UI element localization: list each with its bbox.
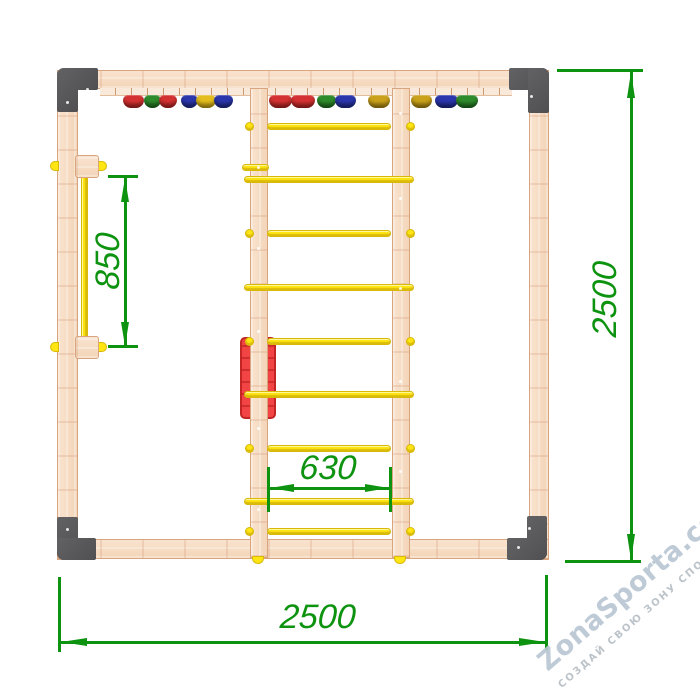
dimension-line bbox=[60, 641, 547, 644]
climbing-hold-blue bbox=[435, 95, 458, 108]
climbing-hold-red bbox=[291, 95, 315, 108]
frame-left-post bbox=[57, 70, 78, 560]
rung-end-cap bbox=[245, 229, 254, 238]
screw-dot bbox=[528, 527, 531, 530]
climbing-hold-yellow bbox=[196, 95, 216, 108]
screw-dot bbox=[86, 88, 89, 91]
ladder-rung bbox=[267, 528, 391, 535]
corner-bracket-bottom-right bbox=[507, 538, 547, 560]
ladder-rung bbox=[244, 284, 414, 291]
screw-dot bbox=[66, 528, 69, 531]
rail-bottom-cap bbox=[394, 556, 406, 564]
dimension-line bbox=[630, 71, 633, 561]
corner-bracket-bottom-left bbox=[57, 538, 96, 560]
screw-dot bbox=[257, 247, 260, 250]
bar-clamp-top bbox=[75, 155, 99, 178]
arrowhead-left bbox=[270, 484, 294, 492]
rung-end-cap bbox=[406, 122, 415, 131]
arrowhead-down bbox=[121, 322, 129, 346]
climbing-hold-blue bbox=[214, 95, 233, 108]
climbing-hold-green bbox=[456, 95, 478, 108]
corner-bracket-top-left bbox=[57, 68, 78, 112]
pullup-bar bbox=[81, 170, 88, 349]
screw-dot bbox=[257, 330, 260, 333]
climbing-hold-red bbox=[159, 95, 177, 108]
dimension-label-2500-bottom: 2500 bbox=[263, 599, 373, 633]
ladder-rung bbox=[244, 176, 414, 183]
screw-dot bbox=[517, 546, 520, 549]
climbing-hold-gold bbox=[368, 95, 390, 108]
arrowhead-up bbox=[627, 72, 635, 98]
ladder-rung bbox=[267, 230, 391, 237]
rail-bottom-cap bbox=[252, 556, 264, 564]
ladder-rung bbox=[244, 391, 414, 398]
rung-end-cap bbox=[245, 337, 254, 346]
arrowhead-up bbox=[121, 178, 129, 202]
screw-dot bbox=[257, 508, 260, 511]
screw-dot bbox=[399, 197, 402, 200]
screw-dot bbox=[530, 95, 533, 98]
rung-end-cap bbox=[406, 444, 415, 453]
rung-end-cap bbox=[245, 527, 254, 536]
bar-peg bbox=[50, 161, 59, 171]
frame-top-beam bbox=[57, 70, 549, 89]
arrowhead-left bbox=[61, 638, 87, 646]
arrowhead-down bbox=[627, 534, 635, 560]
screw-dot bbox=[66, 101, 69, 104]
screw-dot bbox=[399, 112, 402, 115]
bar-peg bbox=[50, 342, 59, 352]
screw-dot bbox=[399, 380, 402, 383]
rung-end-cap bbox=[406, 527, 415, 536]
rung-end-cap bbox=[406, 229, 415, 238]
rung-end-cap bbox=[245, 444, 254, 453]
dimension-label-850: 850 bbox=[91, 210, 125, 312]
rung-end-cap bbox=[406, 337, 415, 346]
climbing-hold-green bbox=[317, 95, 336, 108]
frame-bottom-beam bbox=[57, 539, 549, 559]
ladder-rung bbox=[267, 338, 391, 345]
climbing-hold-blue bbox=[335, 95, 356, 108]
corner-bracket-top-right bbox=[528, 68, 549, 113]
bar-clamp-bottom bbox=[75, 336, 99, 359]
climbing-hold-red bbox=[269, 95, 292, 108]
screw-dot bbox=[257, 166, 260, 169]
ladder-rung bbox=[242, 164, 269, 171]
ladder-rung bbox=[267, 123, 391, 130]
ladder-rail-left bbox=[250, 88, 268, 558]
dimension-label-2500-right: 2500 bbox=[588, 243, 622, 355]
screw-dot bbox=[257, 427, 260, 430]
arrowhead-right bbox=[365, 484, 389, 492]
frame-right-post bbox=[529, 70, 549, 560]
climbing-hold-red bbox=[123, 95, 144, 108]
technical-drawing-canvas: 850 630 2500 2500 ZonaSporta.com СОЗДАЙ … bbox=[0, 0, 700, 700]
rung-end-cap bbox=[245, 122, 254, 131]
dimension-label-630: 630 bbox=[277, 450, 379, 484]
ladder-rail-right bbox=[392, 88, 410, 558]
screw-dot bbox=[399, 287, 402, 290]
climbing-hold-gold bbox=[411, 95, 432, 108]
screw-dot bbox=[399, 470, 402, 473]
